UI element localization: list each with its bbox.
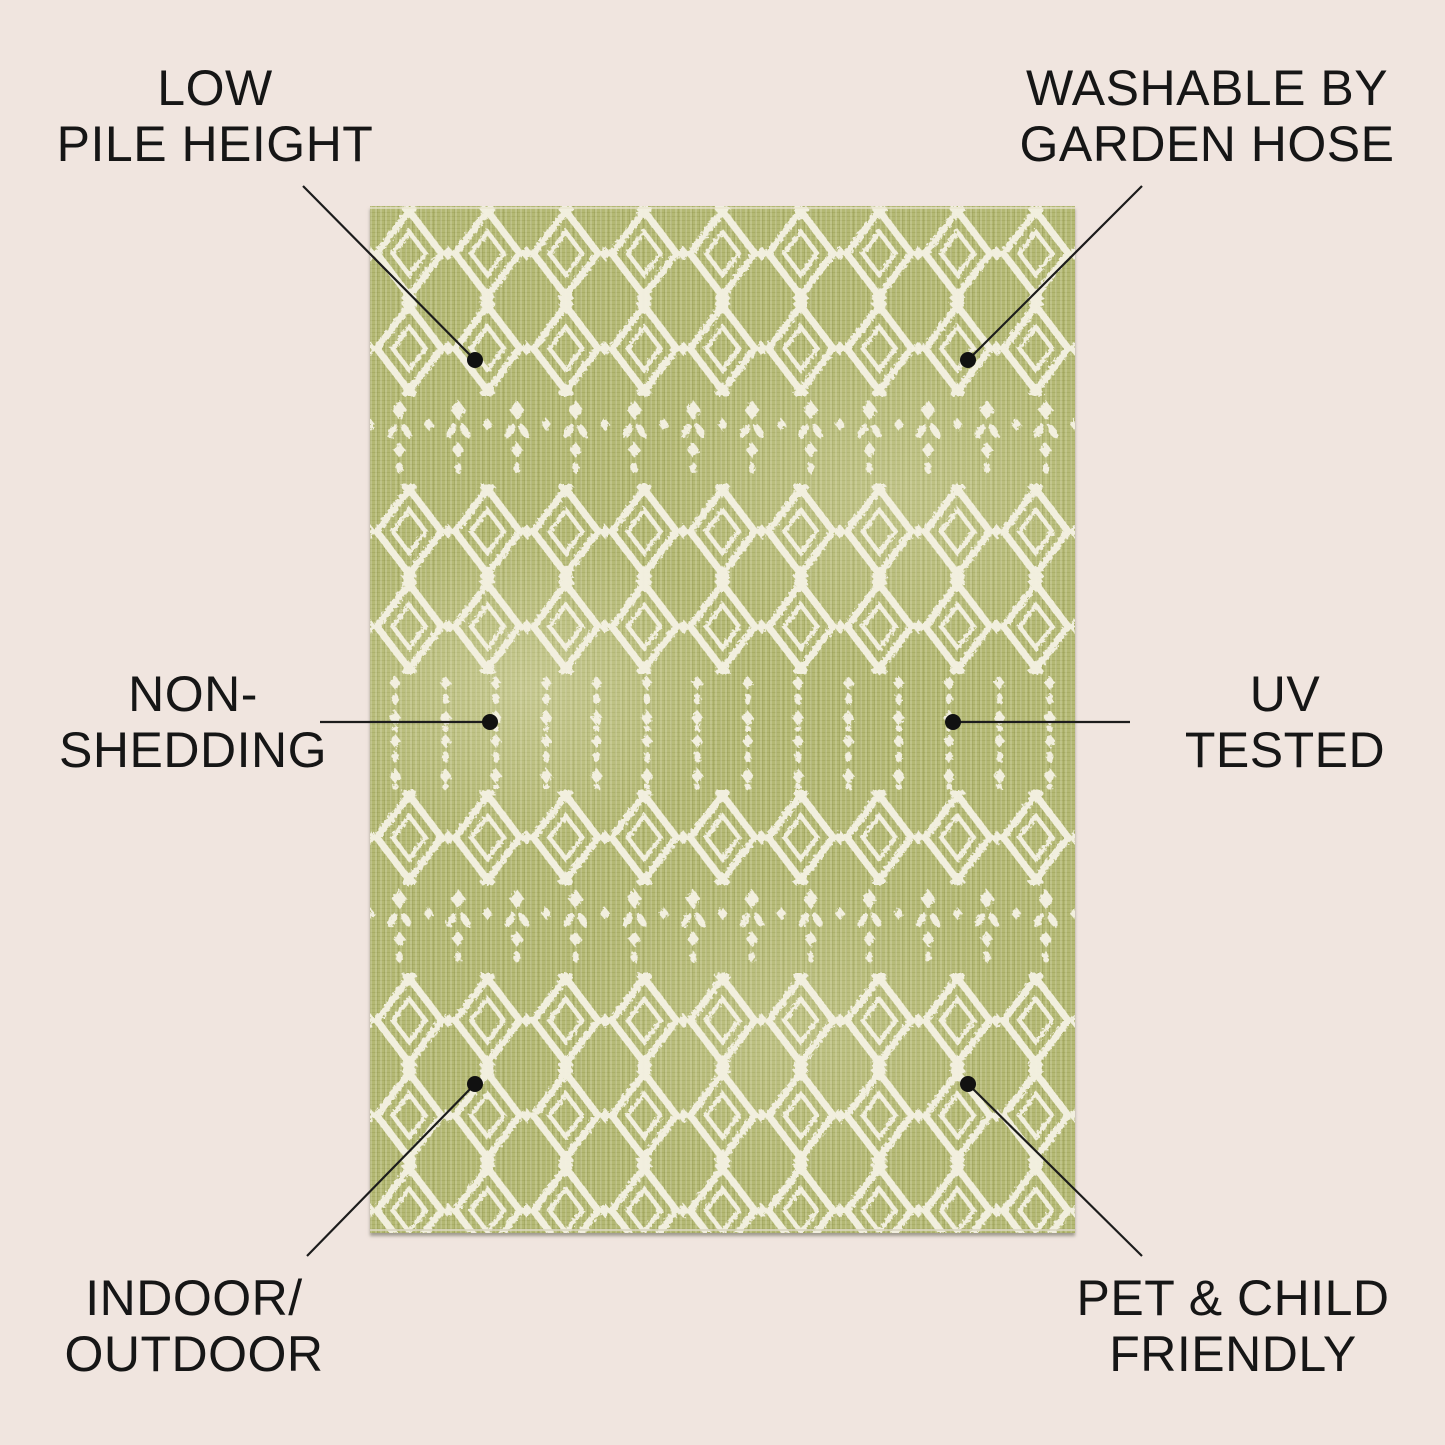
callout-text-line: UV [1185,666,1385,722]
callout-label-indoor-outdoor: INDOOR/ OUTDOOR [64,1270,323,1382]
callout-text-line: NON- [59,666,327,722]
callout-label-pet-child-friendly: PET & CHILD FRIENDLY [1077,1270,1390,1382]
callout-text-line: PILE HEIGHT [57,116,374,172]
callout-text-line: GARDEN HOSE [1019,116,1394,172]
callout-text-line: TESTED [1185,722,1385,778]
rug-pattern [370,206,1075,1233]
callout-text-line: INDOOR/ [64,1270,323,1326]
callout-label-low-pile-height: LOW PILE HEIGHT [57,60,374,172]
callout-label-non-shedding: NON- SHEDDING [59,666,327,778]
callout-text-line: OUTDOOR [64,1326,323,1382]
rug-photo [370,206,1075,1233]
callout-text-line: PET & CHILD [1077,1270,1390,1326]
feature-image-canvas: LOW PILE HEIGHT WASHABLE BY GARDEN HOSE … [0,0,1445,1445]
callout-text-line: SHEDDING [59,722,327,778]
callout-label-washable-by-garden-hose: WASHABLE BY GARDEN HOSE [1019,60,1394,172]
callout-label-uv-tested: UV TESTED [1185,666,1385,778]
callout-text-line: WASHABLE BY [1019,60,1394,116]
callout-text-line: FRIENDLY [1077,1326,1390,1382]
callout-text-line: LOW [57,60,374,116]
